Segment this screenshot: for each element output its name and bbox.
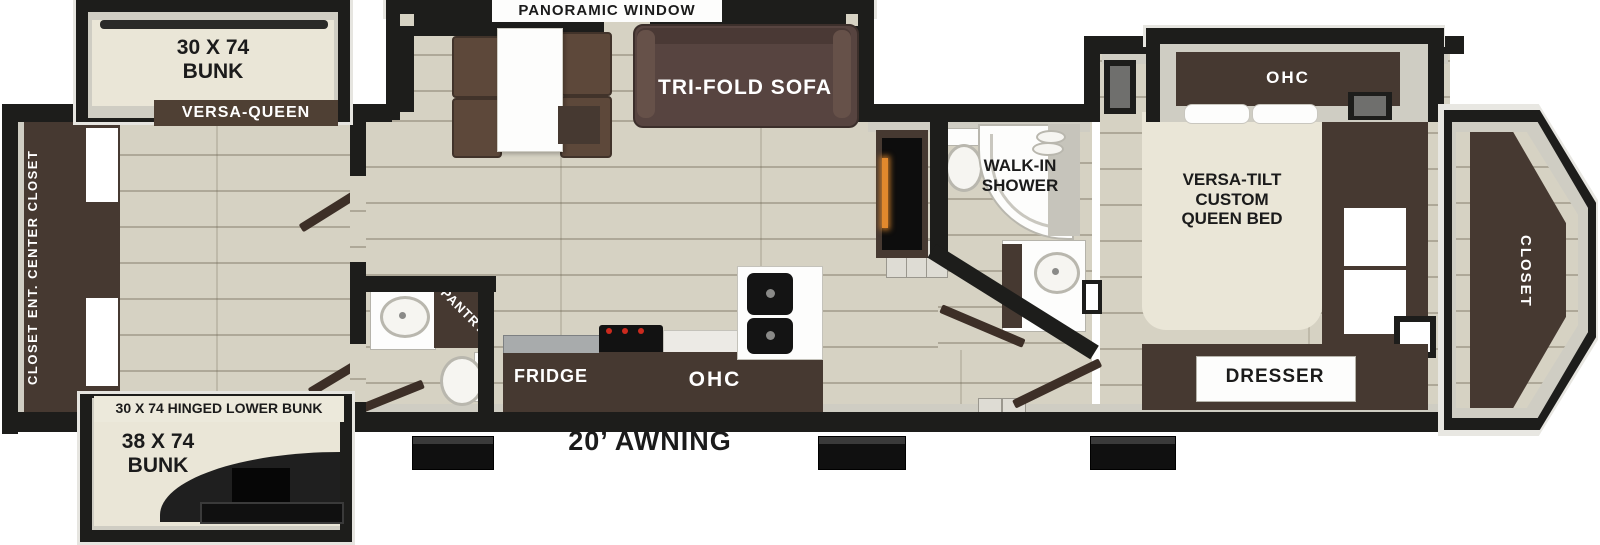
stove-burner [622, 328, 628, 334]
sink-drain [766, 331, 775, 340]
sofa-back [637, 28, 851, 44]
side-cabinet [558, 106, 600, 144]
interior-wall [350, 276, 496, 292]
window-glass [1086, 284, 1098, 310]
bedroom-slideout-wall [1146, 28, 1160, 122]
dinette-chair [560, 32, 612, 96]
shower-curtain [1032, 142, 1064, 156]
doorway [350, 344, 366, 402]
sink-drain [1052, 268, 1059, 275]
lower-bunk-label: 38 X 74 BUNK [98, 430, 218, 478]
dinette-chair [452, 36, 502, 98]
wardrobe-mirror [1344, 208, 1406, 266]
fireplace [882, 158, 888, 228]
entry-steps [818, 436, 906, 470]
interior-wall [478, 276, 494, 418]
bedroom-ohc-label: OHC [1176, 68, 1400, 88]
pillow [1252, 104, 1318, 124]
hinged-bunk-label: 30 X 74 HINGED LOWER BUNK [94, 400, 344, 416]
panoramic-window-label: PANORAMIC WINDOW [492, 2, 722, 19]
living-slideout-wall [386, 0, 400, 120]
doorway [350, 176, 366, 262]
front-closet-label: CLOSET [1500, 196, 1534, 346]
closet-door-panel [86, 298, 118, 386]
pillow [1184, 104, 1250, 124]
walk-in-shower-label: WALK-IN SHOWER [952, 156, 1088, 195]
vanity-cabinet [1002, 244, 1022, 328]
bunk-step [200, 502, 344, 524]
interior-wall [930, 118, 948, 256]
dresser-label: DRESSER [1196, 366, 1354, 388]
kitchen-ohc-label: OHC [650, 368, 780, 392]
stove-burner [606, 328, 612, 334]
closet-door-panel [86, 128, 118, 202]
fridge [503, 353, 599, 421]
stove-burner [638, 328, 644, 334]
dinette-chair [452, 98, 502, 158]
exterior-wall [2, 104, 82, 122]
versa-queen-label: VERSA-QUEEN [154, 104, 338, 122]
sink-drain [766, 289, 775, 298]
fridge-top [503, 335, 601, 355]
bunk-headboard [100, 20, 328, 29]
living-slideout-wall [858, 0, 874, 120]
fridge-label: FRIDGE [503, 366, 599, 387]
rv-floorplan: 20’ AWNING CLOSET ENT. CENTER CLOSET FRI… [0, 0, 1600, 545]
upper-bunk-label: 30 X 74 BUNK [92, 36, 334, 84]
tv [882, 138, 922, 250]
window [400, 26, 414, 112]
exterior-wall [1084, 36, 1100, 122]
exterior-wall [2, 104, 18, 434]
sink-drain [399, 312, 406, 319]
bedroom-slideout-wall [1146, 28, 1442, 44]
sofa-arm [833, 30, 851, 118]
window-glass [1110, 66, 1130, 108]
entry-steps [1090, 436, 1176, 470]
wall-unit-label: CLOSET ENT. CENTER CLOSET [26, 128, 74, 406]
dinette-table [497, 28, 563, 152]
entry-steps [412, 436, 494, 470]
bed-label: VERSA-TILT CUSTOM QUEEN BED [1142, 170, 1322, 229]
sofa-arm [637, 30, 655, 118]
window-glass [1354, 96, 1386, 116]
exterior-wall [858, 104, 1092, 122]
sofa-label: TRI-FOLD SOFA [645, 76, 845, 100]
